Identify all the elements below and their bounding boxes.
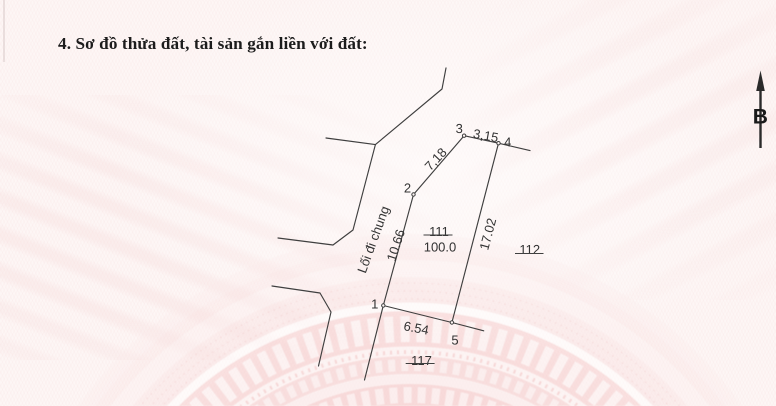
svg-text:3: 3 xyxy=(456,121,463,136)
svg-text:3,15: 3,15 xyxy=(472,126,500,145)
svg-text:111: 111 xyxy=(429,224,449,239)
svg-text:2: 2 xyxy=(404,181,411,196)
svg-text:B: B xyxy=(753,106,768,129)
svg-text:100.0: 100.0 xyxy=(424,240,457,255)
svg-text:10.66: 10.66 xyxy=(384,228,408,264)
svg-text:7,18: 7,18 xyxy=(422,145,450,174)
svg-text:112: 112 xyxy=(519,242,540,257)
svg-text:1: 1 xyxy=(371,297,378,312)
svg-text:6.54: 6.54 xyxy=(402,318,430,338)
svg-text:117: 117 xyxy=(411,353,432,368)
svg-text:4: 4 xyxy=(504,135,511,150)
svg-text:Lối đi chung: Lối đi chung xyxy=(354,204,392,275)
svg-text:17.02: 17.02 xyxy=(476,216,499,251)
svg-text:5: 5 xyxy=(451,333,458,348)
